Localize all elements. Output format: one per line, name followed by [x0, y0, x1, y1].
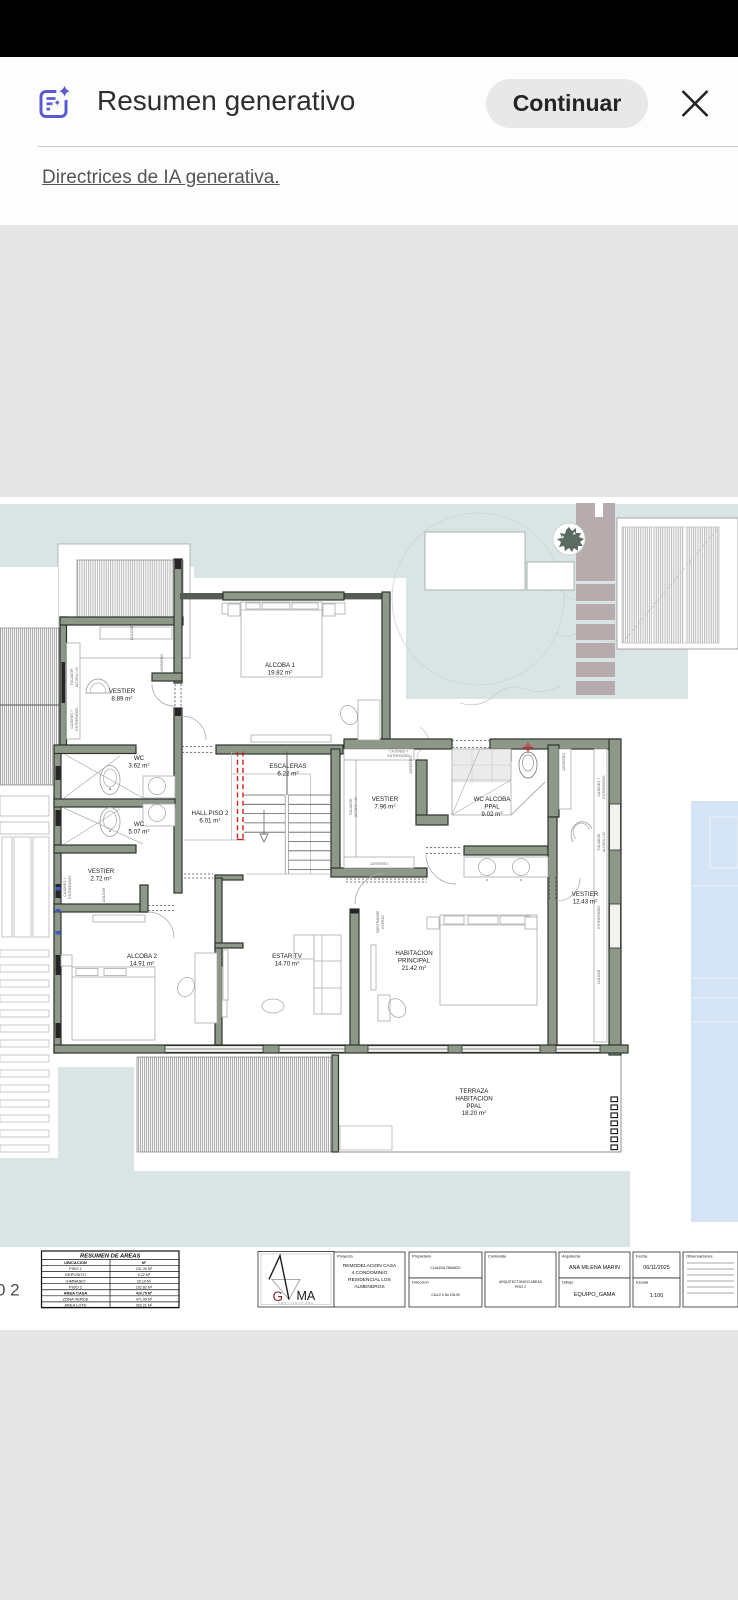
- svg-text:ENTREPAÑOS: ENTREPAÑOS: [67, 875, 72, 899]
- svg-text:1:100: 1:100: [650, 1293, 664, 1299]
- svg-text:Arquitecta: Arquitecta: [562, 1254, 581, 1259]
- svg-text:ZONA VERDE: ZONA VERDE: [63, 1296, 89, 1301]
- svg-text:ALTURA 0.90: ALTURA 0.90: [602, 832, 606, 853]
- svg-text:19.82 m2: 19.82 m2: [268, 668, 293, 677]
- svg-text:ENTREPAÑOS: ENTREPAÑOS: [74, 707, 79, 731]
- svg-text:CAJONES Y: CAJONES Y: [389, 750, 409, 754]
- svg-text:RESIDENCIAL LOS: RESIDENCIAL LOS: [348, 1277, 391, 1283]
- svg-text:ARQUITECTURA: ARQUITECTURA: [278, 1301, 314, 1305]
- svg-text:ENTREPAÑOS: ENTREPAÑOS: [601, 775, 606, 799]
- svg-text:ENTREPAÑOS: ENTREPAÑOS: [387, 753, 411, 758]
- svg-text:WC: WC: [134, 821, 145, 828]
- svg-text:ALTURA 0.90: ALTURA 0.90: [354, 797, 358, 818]
- svg-text:CALLE 6 No 109-50: CALLE 6 No 109-50: [431, 1293, 460, 1297]
- svg-text:PPAL: PPAL: [466, 1103, 482, 1110]
- svg-text:14.70 m2: 14.70 m2: [275, 959, 300, 968]
- svg-text:4 CONDOMINIO: 4 CONDOMINIO: [352, 1270, 388, 1276]
- svg-text:7.96 m2: 7.96 m2: [374, 802, 396, 811]
- svg-text:471.95 M²: 471.95 M²: [136, 1297, 153, 1301]
- svg-text:162.82 M²: 162.82 M²: [136, 1285, 153, 1289]
- svg-text:HABITACION: HABITACION: [395, 950, 432, 957]
- svg-text:Observaciones: Observaciones: [686, 1254, 713, 1259]
- svg-text:EQUIPO_GAMA: EQUIPO_GAMA: [574, 1292, 616, 1298]
- svg-text:3.62 m2: 3.62 m2: [128, 761, 150, 770]
- svg-text:ZAPATERO: ZAPATERO: [160, 654, 164, 672]
- svg-text:20.10 M²: 20.10 M²: [137, 1279, 152, 1283]
- svg-text:REMODELACION CASA: REMODELACION CASA: [343, 1263, 397, 1269]
- svg-text:TOCADOR: TOCADOR: [597, 833, 601, 850]
- svg-text:Contenido: Contenido: [488, 1254, 507, 1259]
- svg-text:CAJONES Y: CAJONES Y: [63, 877, 67, 897]
- svg-text:TOCADOR: TOCADOR: [70, 668, 74, 685]
- svg-text:AREA LOTE: AREA LOTE: [64, 1302, 87, 1307]
- svg-text:TERRAZA: TERRAZA: [460, 1088, 490, 1095]
- svg-text:CAJONES Y: CAJONES Y: [597, 777, 601, 797]
- svg-text:CLAUDIA OBANDO: CLAUDIA OBANDO: [430, 1266, 461, 1270]
- svg-text:ARQUITECTONICO AREAS: ARQUITECTONICO AREAS: [499, 1280, 543, 1284]
- svg-text:CAJONES Y: CAJONES Y: [70, 709, 74, 729]
- svg-text:06/11/2025: 06/11/2025: [643, 1265, 670, 1271]
- svg-text:2.72 m2: 2.72 m2: [90, 874, 112, 883]
- svg-text:MOSTRADOR: MOSTRADOR: [376, 910, 380, 933]
- svg-text:231.33 M²: 231.33 M²: [136, 1267, 153, 1271]
- svg-text:COLGAR: COLGAR: [102, 887, 106, 902]
- svg-text:Escala: Escala: [636, 1280, 649, 1285]
- svg-text:Fecha: Fecha: [636, 1254, 648, 1259]
- svg-text:21.42 m2: 21.42 m2: [402, 963, 427, 972]
- svg-text:ALTURA 0.90: ALTURA 0.90: [75, 667, 79, 688]
- svg-text:COLGAR: COLGAR: [597, 969, 601, 984]
- svg-text:ZAPATERO: ZAPATERO: [562, 753, 566, 771]
- svg-text:Direccion: Direccion: [412, 1280, 429, 1285]
- svg-text:18.20 m2: 18.20 m2: [462, 1109, 487, 1118]
- svg-text:6.01 m2: 6.01 m2: [199, 816, 221, 825]
- svg-text:HALL PISO 2: HALL PISO 2: [192, 810, 229, 817]
- svg-text:Dibujo: Dibujo: [562, 1280, 574, 1285]
- svg-text:5.07 m2: 5.07 m2: [128, 827, 150, 836]
- svg-text:DEPOSITO: DEPOSITO: [65, 1272, 86, 1277]
- svg-text:AREA CASA: AREA CASA: [64, 1290, 88, 1295]
- svg-text:12.43 m2: 12.43 m2: [573, 897, 598, 906]
- svg-text:COLGAR: COLGAR: [130, 625, 134, 640]
- svg-text:420.75 M²: 420.75 M²: [136, 1291, 153, 1295]
- svg-text:Proyecto: Proyecto: [337, 1254, 354, 1259]
- svg-text:RESUMEN DE AREAS: RESUMEN DE AREAS: [80, 1253, 140, 1259]
- svg-text:UBICACION: UBICACION: [64, 1260, 87, 1265]
- svg-text:9.02 m2: 9.02 m2: [481, 809, 503, 818]
- svg-text:GIMNASIO: GIMNASIO: [65, 1278, 85, 1283]
- svg-text:ALMENDROS: ALMENDROS: [354, 1284, 384, 1290]
- svg-text:14.91 m2: 14.91 m2: [130, 959, 155, 968]
- svg-text:902.21 M²: 902.21 M²: [136, 1303, 153, 1307]
- svg-text:ZAPATERO: ZAPATERO: [409, 756, 413, 774]
- svg-text:WC ALCOBA: WC ALCOBA: [474, 796, 512, 803]
- svg-text:8.89 m2: 8.89 m2: [111, 694, 133, 703]
- svg-text:HABITACION: HABITACION: [455, 1095, 492, 1102]
- svg-text:Propietario: Propietario: [412, 1254, 432, 1259]
- svg-text:6.22 M²: 6.22 M²: [138, 1273, 151, 1277]
- svg-text:PISO 2: PISO 2: [515, 1285, 526, 1289]
- svg-text:PISO 1: PISO 1: [69, 1266, 83, 1271]
- svg-text:0 2: 0 2: [0, 1281, 20, 1300]
- svg-text:PPAL: PPAL: [484, 803, 500, 810]
- svg-text:ZAPATERO: ZAPATERO: [370, 862, 388, 866]
- svg-text:PISO 2: PISO 2: [69, 1284, 83, 1289]
- svg-text:ESPEJO: ESPEJO: [381, 915, 385, 929]
- svg-text:WC: WC: [134, 755, 145, 762]
- svg-text:TOCADOR: TOCADOR: [349, 798, 353, 815]
- svg-text:ESCALERAS: ESCALERAS: [269, 763, 306, 770]
- svg-text:ENTREPAÑOS: ENTREPAÑOS: [596, 905, 601, 929]
- svg-text:ANA MILENA MARIN: ANA MILENA MARIN: [569, 1265, 620, 1271]
- svg-text:6.22 m2: 6.22 m2: [277, 769, 299, 778]
